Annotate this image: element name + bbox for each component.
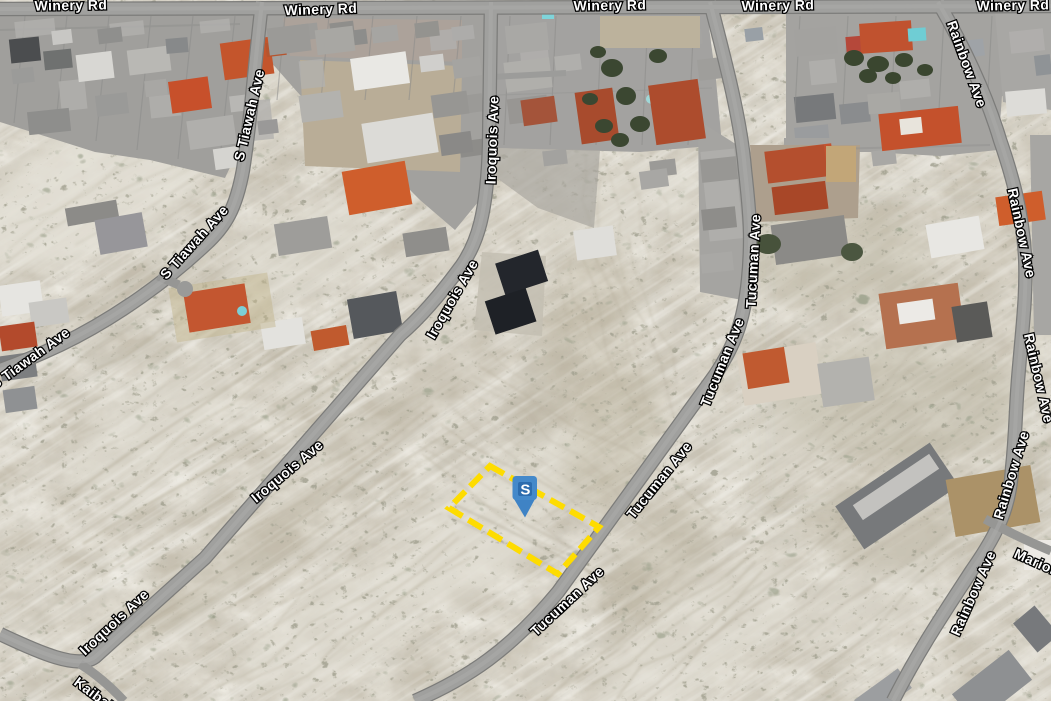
svg-text:Winery Rd: Winery Rd (34, 0, 107, 14)
svg-text:Winery Rd: Winery Rd (284, 0, 357, 18)
svg-text:Iroquois Ave: Iroquois Ave (482, 95, 501, 184)
svg-text:Winery Rd: Winery Rd (976, 0, 1049, 14)
svg-text:Winery Rd: Winery Rd (741, 0, 814, 14)
svg-text:Winery Rd: Winery Rd (573, 0, 646, 14)
svg-text:S: S (520, 482, 530, 499)
